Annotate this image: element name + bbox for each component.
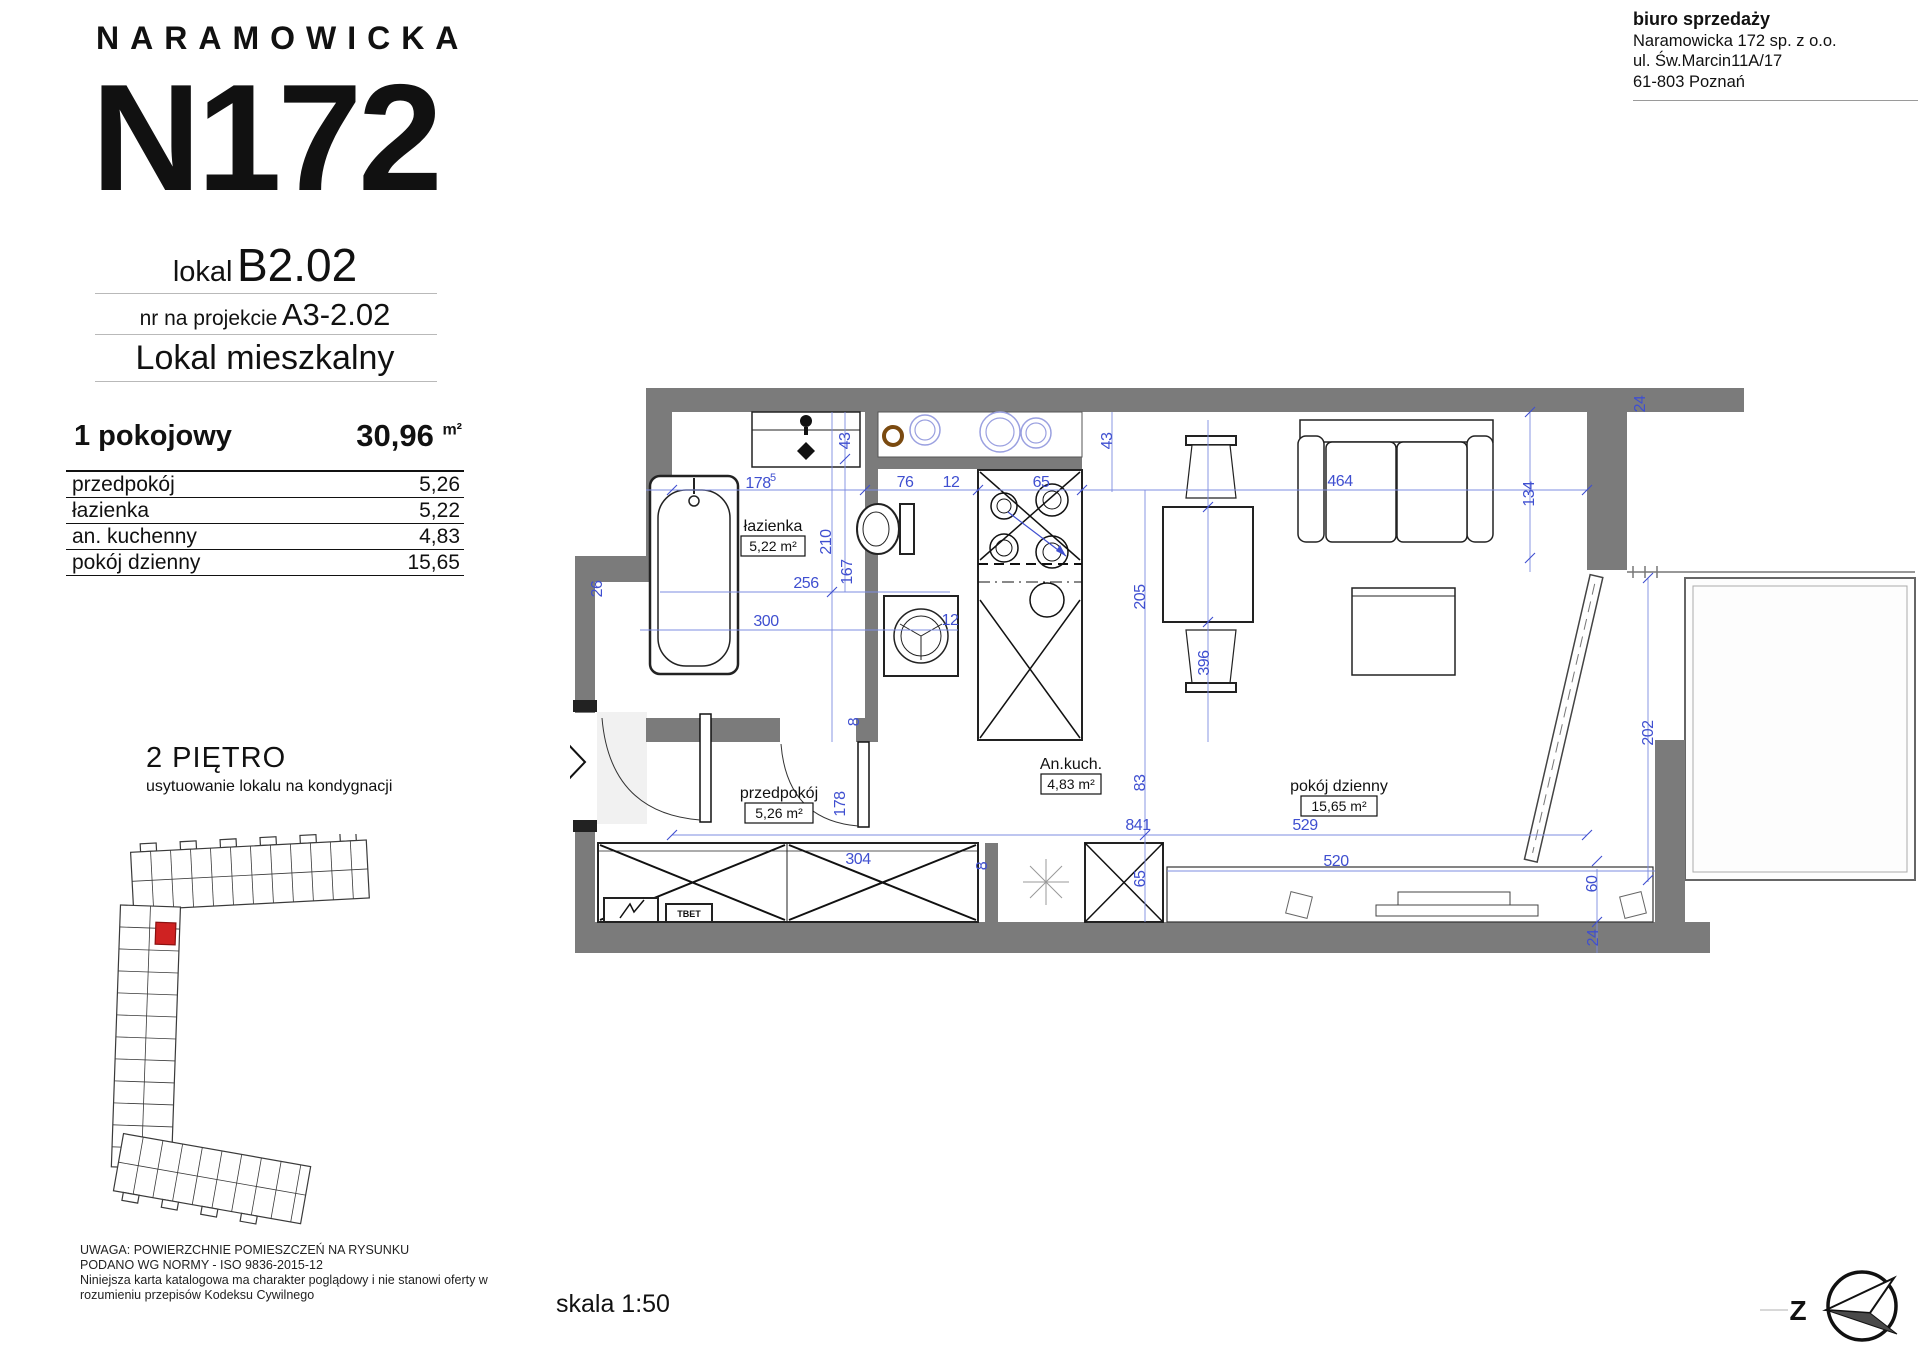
divider — [95, 381, 437, 382]
table-row: łazienka 5,22 — [66, 498, 464, 524]
table-row: przedpokój 5,26 — [66, 472, 464, 498]
wall-right-upper — [1587, 412, 1627, 570]
divider — [95, 293, 437, 294]
svg-text:202: 202 — [1640, 720, 1657, 746]
svg-text:178: 178 — [832, 791, 849, 817]
svg-text:396: 396 — [1196, 650, 1213, 676]
entrance-arrow-icon — [570, 720, 585, 804]
wall-bottom-stub — [985, 843, 998, 922]
unit-number-row: lokal B2.02 — [85, 238, 445, 292]
svg-text:520: 520 — [1323, 853, 1349, 870]
office-title: biuro sprzedaży — [1633, 8, 1918, 31]
wall-bathroom-south — [646, 718, 780, 742]
rooms-table: przedpokój 5,26 łazienka 5,22 an. kuchen… — [66, 470, 464, 576]
floor-title: 2 PIĘTRO — [146, 742, 392, 775]
floor-plan: TBET — [570, 380, 1920, 1000]
svg-text:43: 43 — [1099, 432, 1116, 449]
svg-text:43: 43 — [837, 432, 854, 449]
basin-faucet — [800, 415, 812, 427]
svg-text:5,22 m²: 5,22 m² — [749, 538, 797, 554]
balcony-door-leaf — [1524, 575, 1602, 862]
tv-sideboard — [1167, 867, 1653, 922]
bathtub-faucet — [689, 496, 699, 506]
wall-left-upper — [575, 582, 595, 713]
svg-text:210: 210 — [818, 529, 835, 555]
svg-text:134: 134 — [1521, 481, 1538, 507]
svg-text:205: 205 — [1132, 584, 1149, 610]
key-plan-bottom-wing — [112, 1134, 311, 1229]
svg-text:167: 167 — [839, 559, 856, 585]
svg-text:15,65 m²: 15,65 m² — [1311, 798, 1367, 814]
area-unit: m² — [442, 422, 462, 439]
north-arrow-compass: Z — [1760, 1258, 1920, 1358]
key-plan-top-wing — [130, 834, 369, 910]
disclaimer-line: UWAGA: POWIERZCHNIE POMIESZCZEŃ NA RYSUN… — [80, 1243, 490, 1258]
speaker-icon — [1620, 892, 1647, 919]
svg-text:300: 300 — [753, 613, 779, 630]
disclaimer: UWAGA: POWIERZCHNIE POMIESZCZEŃ NA RYSUN… — [80, 1243, 490, 1303]
fridge-cabinet — [1085, 843, 1163, 922]
building-number: N172 — [85, 62, 445, 214]
floor-block: 2 PIĘTRO usytuowanie lokalu na kondygnac… — [146, 742, 392, 796]
key-plan-left-stem — [111, 905, 180, 1169]
room-area: 4,83 — [419, 525, 460, 549]
utility-point-icon — [1023, 859, 1069, 905]
lokal-number: B2.02 — [237, 239, 357, 291]
room-label-hall: przedpokój 5,26 m² — [740, 785, 818, 823]
summary-row: 1 pokojowy 30,96 m² — [66, 415, 464, 457]
unit-entrance-marker: A3-2.02 — [570, 720, 585, 804]
svg-text:An.kuch.: An.kuch. — [1040, 756, 1102, 773]
svg-text:60: 60 — [1584, 875, 1601, 892]
table-row: pokój dzienny 15,65 — [66, 550, 464, 576]
boiler-icon — [884, 427, 902, 445]
wardrobe: TBET — [598, 843, 978, 922]
coffee-table — [1352, 588, 1455, 675]
office-street: ul. Św.Marcin11A/17 — [1633, 51, 1918, 72]
svg-text:12: 12 — [943, 474, 960, 491]
wall-bottom — [575, 922, 1655, 953]
catalog-page: NARAMOWICKA N172 lokal B2.02 nr na proje… — [0, 0, 1920, 1358]
svg-text:841: 841 — [1125, 817, 1151, 834]
unit-type: Lokal mieszkalny — [85, 339, 445, 378]
room-area: 5,22 — [419, 499, 460, 523]
disclaimer-line: Niniejsza karta katalogowa ma charakter … — [80, 1273, 490, 1288]
room-label-kitchen: An.kuch. 4,83 m² — [1040, 756, 1102, 794]
washing-machine — [884, 596, 958, 676]
svg-text:256: 256 — [793, 575, 819, 592]
svg-text:przedpokój: przedpokój — [740, 785, 818, 802]
wall-niche — [865, 457, 1082, 469]
svg-text:12: 12 — [942, 612, 959, 629]
total-area: 30,96 m² — [356, 418, 462, 454]
kitchen-unit — [978, 470, 1082, 740]
layout-name: 1 pokojowy — [74, 420, 232, 453]
ceiling-niche-fixtures — [878, 412, 1082, 457]
entrance-threshold — [597, 712, 647, 824]
svg-text:76: 76 — [897, 474, 914, 491]
svg-text:pokój dzienny: pokój dzienny — [1290, 778, 1388, 795]
tv-icon — [1398, 892, 1510, 905]
office-company: Naramowicka 172 sp. z o.o. — [1633, 31, 1918, 52]
wall-left-lower — [575, 823, 595, 922]
room-label-living: pokój dzienny 15,65 m² — [1290, 778, 1388, 816]
room-label-bathroom: łazienka 5,22 m² — [741, 518, 805, 556]
svg-text:8: 8 — [846, 717, 863, 726]
svg-text:24: 24 — [1585, 929, 1602, 946]
scale-label: skala 1:50 — [556, 1290, 670, 1319]
compass-west-label: Z — [1789, 1295, 1806, 1326]
svg-text:65: 65 — [1033, 474, 1050, 491]
sales-office-block: biuro sprzedaży Naramowicka 172 sp. z o.… — [1633, 8, 1918, 101]
toilet — [857, 504, 914, 554]
brand-name: NARAMOWICKA — [85, 20, 445, 57]
room-area: 15,65 — [407, 551, 460, 575]
intercom-box — [604, 898, 658, 922]
bathtub — [650, 476, 738, 674]
highlighted-unit-marker — [155, 922, 176, 945]
divider — [95, 334, 437, 335]
room-name: an. kuchenny — [72, 525, 197, 549]
svg-text:łazienka: łazienka — [744, 518, 803, 535]
wall-top — [646, 388, 1744, 412]
entry-door-leaf — [700, 714, 711, 822]
disclaimer-line: PODANO WG NORMY - ISO 9836-2015-12 — [80, 1258, 490, 1273]
table-row: an. kuchenny 4,83 — [66, 524, 464, 550]
room-area: 5,26 — [419, 473, 460, 497]
lokal-label: lokal — [173, 256, 233, 288]
wall-corner — [1655, 922, 1710, 953]
project-number-row: nr na projekcie A3-2.02 — [85, 297, 445, 333]
svg-text:5: 5 — [770, 472, 776, 484]
svg-text:83: 83 — [1132, 774, 1149, 791]
svg-text:24: 24 — [1632, 395, 1649, 412]
svg-text:304: 304 — [845, 851, 871, 868]
svg-text:26: 26 — [589, 580, 606, 597]
office-city: 61-803 Poznań — [1633, 72, 1918, 93]
svg-text:5,26 m²: 5,26 m² — [755, 805, 803, 821]
project-number: A3-2.02 — [282, 297, 391, 332]
room-name: pokój dzienny — [72, 551, 200, 575]
room-name: przedpokój — [72, 473, 175, 497]
svg-text:4,83 m²: 4,83 m² — [1047, 776, 1095, 792]
speaker-icon — [1286, 892, 1313, 919]
electrical-panel-label: TBET — [677, 909, 701, 919]
svg-text:464: 464 — [1327, 473, 1353, 490]
project-label: nr na projekcie — [140, 307, 278, 330]
disclaimer-line: rozumieniu przepisów Kodeksu Cywilnego — [80, 1288, 490, 1303]
bathroom-door-leaf — [858, 742, 869, 827]
svg-text:65: 65 — [1132, 870, 1149, 887]
floor-subtitle: usytuowanie lokalu na kondygnacji — [146, 778, 392, 796]
svg-text:8: 8 — [974, 861, 991, 870]
svg-text:529: 529 — [1292, 817, 1318, 834]
room-name: łazienka — [72, 499, 149, 523]
kitchen-sink — [1030, 583, 1064, 617]
svg-text:178: 178 — [745, 475, 771, 492]
building-key-plan — [108, 834, 398, 1229]
wall-right-lower — [1655, 740, 1685, 922]
